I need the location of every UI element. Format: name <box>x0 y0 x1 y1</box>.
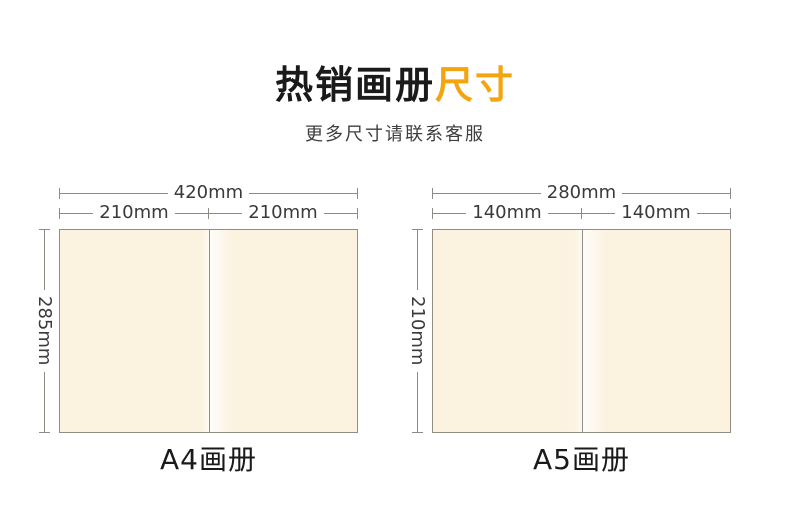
infographic-page: 热销画册尺寸 更多尺寸请联系客服 420mm 210mm 210mm <box>0 0 790 520</box>
dimension-line <box>417 372 418 432</box>
a4-right-page-width-label: 210mm <box>242 206 323 220</box>
tick <box>357 208 358 219</box>
diagram-a4-booklet: 420mm 210mm 210mm 285mm <box>29 186 358 476</box>
a4-height-dimension: 285mm <box>29 229 59 433</box>
dimension-line <box>60 213 93 214</box>
fold-line <box>582 230 583 432</box>
a5-right-page-width-label: 140mm <box>615 206 696 220</box>
tick <box>730 188 731 199</box>
fold-highlight <box>574 230 582 432</box>
diagram-a5-booklet: 280mm 140mm 140mm 210mm <box>402 186 731 476</box>
a5-height-label: 210mm <box>408 290 426 371</box>
fold-line <box>209 230 210 432</box>
dimension-line <box>175 213 208 214</box>
dimension-line <box>622 193 730 194</box>
a4-total-width-label: 420mm <box>168 186 249 200</box>
tick <box>730 208 731 219</box>
a4-half-width-dimension: 210mm 210mm <box>59 206 358 220</box>
a4-total-width-dimension: 420mm <box>59 186 358 200</box>
page-title-accent: 尺寸 <box>435 63 515 107</box>
fold-highlight <box>582 230 606 432</box>
page-subtitle: 更多尺寸请联系客服 <box>0 120 790 146</box>
dimension-line <box>44 372 45 432</box>
tick <box>412 432 423 433</box>
a5-total-width-dimension: 280mm <box>432 186 731 200</box>
dimension-line <box>417 230 418 290</box>
a5-half-width-dimension: 140mm 140mm <box>432 206 731 220</box>
a4-paper-spread <box>59 229 358 433</box>
a5-left-page-width-label: 140mm <box>466 206 547 220</box>
a5-total-width-label: 280mm <box>541 186 622 200</box>
dimension-line <box>209 213 242 214</box>
dimension-line <box>433 213 466 214</box>
a4-spread-row: 285mm <box>29 229 358 433</box>
dimension-line <box>324 213 357 214</box>
fold-highlight <box>201 230 209 432</box>
page-title-main: 热销画册 <box>275 63 435 107</box>
dimension-line <box>697 213 730 214</box>
tick <box>357 188 358 199</box>
fold-highlight <box>209 230 233 432</box>
dimension-line <box>548 213 581 214</box>
dimension-line <box>60 193 168 194</box>
a5-paper-spread <box>432 229 731 433</box>
a5-spread-row: 210mm <box>402 229 731 433</box>
tick <box>39 432 50 433</box>
dimension-line <box>249 193 357 194</box>
a4-caption: A4画册 <box>59 444 358 476</box>
a5-height-dimension: 210mm <box>402 229 432 433</box>
a5-caption: A5画册 <box>432 444 731 476</box>
a4-left-page-width-label: 210mm <box>93 206 174 220</box>
a4-height-label: 285mm <box>35 290 53 371</box>
dimension-line <box>44 230 45 290</box>
dimension-line <box>433 193 541 194</box>
dimension-line <box>582 213 615 214</box>
page-title: 热销画册尺寸 <box>0 54 790 109</box>
